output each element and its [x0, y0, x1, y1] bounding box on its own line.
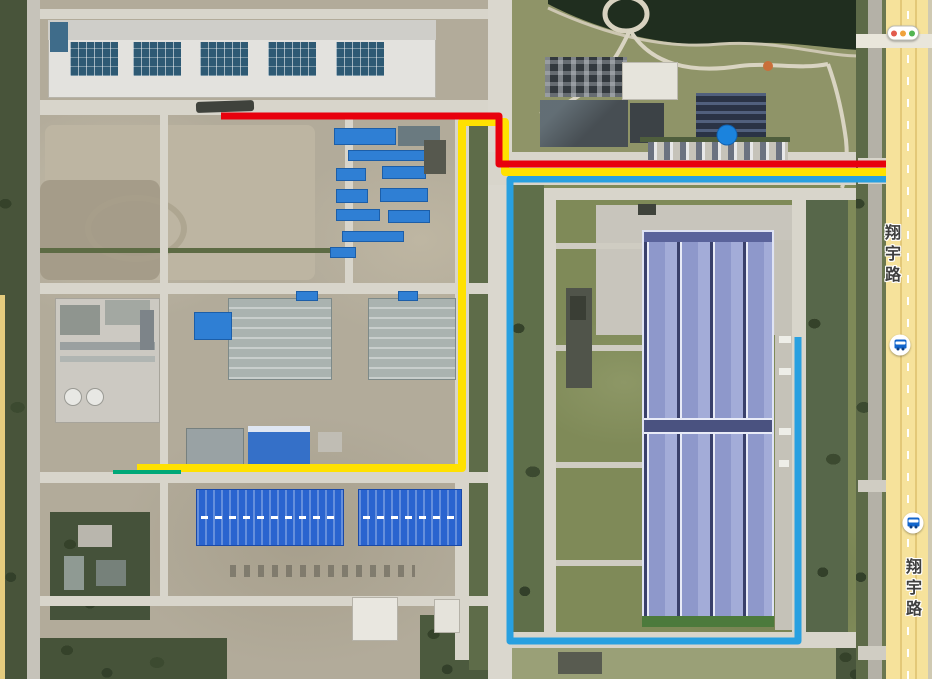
cross-road-south: [858, 646, 886, 660]
campus-road-north: [544, 188, 860, 200]
cross-road-stub: [858, 480, 886, 492]
dark-bar: [196, 100, 254, 113]
striped-warehouse-1: [196, 489, 344, 546]
cross-road-mid: [858, 158, 886, 184]
campus-connector-1: [556, 243, 642, 249]
avenue-east-edge: [928, 0, 932, 679]
dock-truck: [779, 368, 791, 375]
road-label-xiangyu-1: 翔宇路: [884, 224, 903, 286]
long-factory-roofband: [48, 20, 436, 40]
grid-road-h3: [40, 472, 492, 483]
satellite-map[interactable]: 翔宇路 翔宇路: [0, 0, 932, 679]
flower-bed: [763, 61, 773, 71]
bus-icon: [894, 340, 906, 349]
warehouse-lawn-south: [642, 616, 774, 627]
vehicle-row: [230, 565, 415, 577]
storage-tank: [64, 388, 82, 406]
gray-plant-1: [228, 298, 332, 380]
bus-stop-icon[interactable]: [890, 335, 911, 356]
substation: [64, 556, 84, 590]
white-building: [622, 62, 678, 100]
roof-panel-3: [200, 42, 248, 76]
hedge-1: [640, 137, 790, 142]
traffic-light-dot: [909, 30, 915, 36]
pipe-rack-2: [60, 356, 155, 362]
white-shed-2: [434, 599, 460, 633]
roof-panel-1: [70, 42, 118, 76]
blue-shed: [342, 231, 404, 242]
dark-utility-inner: [570, 296, 586, 320]
campus-connector-4: [556, 560, 642, 566]
grid-road-h1: [40, 100, 490, 115]
avenue-tree-strip: [856, 0, 868, 679]
grid-road-h2: [40, 283, 490, 294]
blue-annex: [194, 312, 232, 340]
road-label-xiangyu-2: 翔宇路: [905, 558, 924, 620]
roof-panel-5: [336, 42, 384, 76]
rooftop-unit: [398, 291, 418, 301]
grid-road-top-edge: [40, 9, 490, 19]
blue-shed: [348, 150, 434, 161]
crane-structure: [424, 140, 446, 174]
plant-unit-1: [60, 305, 100, 335]
blue-shed: [336, 209, 380, 221]
pond: [548, 0, 860, 50]
rooftop-unit: [296, 291, 318, 301]
office-block-dotted: [545, 57, 627, 97]
dock-truck: [779, 336, 791, 343]
office-block-flat: [540, 100, 628, 147]
dock-truck: [779, 460, 789, 467]
small-gray-shed: [78, 525, 112, 547]
big-warehouse-midband: [644, 418, 772, 434]
blue-shed: [388, 210, 430, 223]
bus-icon: [907, 518, 919, 527]
blue-shed: [382, 166, 426, 179]
roof-panel-2: [133, 42, 181, 76]
mid-building-small: [318, 432, 342, 452]
campus-connector-3: [556, 462, 642, 468]
big-warehouse-topband: [644, 232, 772, 242]
plant-tower: [140, 310, 154, 350]
campus-road-east: [792, 195, 806, 640]
roof-panel-4: [268, 42, 316, 76]
striped-warehouse-2: [358, 489, 462, 546]
substation-2: [96, 560, 126, 586]
location-dot-marker[interactable]: [717, 125, 738, 146]
traffic-light-icon[interactable]: [887, 26, 919, 41]
mid-building-blue: [248, 426, 310, 468]
dock-truck: [779, 428, 791, 435]
bus-stop-icon[interactable]: [903, 513, 924, 534]
south-shed: [558, 652, 602, 674]
mid-building-gray: [186, 428, 244, 468]
storage-tank: [86, 388, 104, 406]
blue-shed: [334, 128, 396, 145]
blue-shed: [380, 188, 428, 202]
traffic-light-dot: [900, 30, 906, 36]
traffic-light-dot: [891, 30, 897, 36]
blue-shed: [336, 168, 366, 181]
grid-road-h4: [40, 596, 490, 606]
campus-road-west: [544, 188, 556, 640]
apron-structure: [638, 204, 656, 215]
campus-road-south: [512, 632, 885, 648]
parking-row: [648, 142, 788, 160]
roof-corner-blue: [50, 22, 68, 52]
white-shed-1: [352, 597, 398, 641]
service-road: [868, 0, 882, 679]
west-road: [27, 0, 40, 679]
blue-shed: [330, 247, 356, 258]
hedge-2: [640, 162, 790, 166]
grid-road-v1: [160, 100, 168, 606]
blue-shed: [336, 189, 368, 203]
gray-plant-2: [368, 298, 456, 380]
central-avenue: [488, 0, 512, 679]
grid-road-v3: [455, 100, 469, 660]
